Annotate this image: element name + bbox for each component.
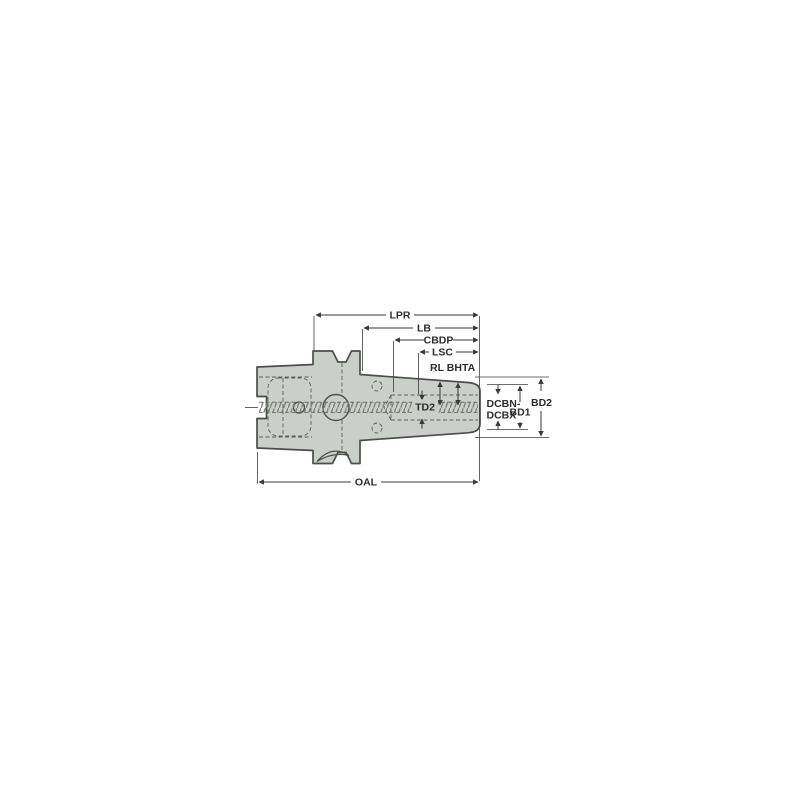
tool-holder-diagram: LPR LB CBDP LSC RL BHTA TD2 DCBN- DCBX B… (0, 0, 800, 800)
page-background: LPR LB CBDP LSC RL BHTA TD2 DCBN- DCBX B… (0, 0, 800, 800)
dim-label-lpr: LPR (390, 310, 411, 322)
dim-label-oal: OAL (355, 477, 378, 489)
center-thread-band (259, 402, 478, 412)
dim-label-bhta: BHTA (447, 362, 476, 374)
dim-label-td2: TD2 (415, 402, 435, 414)
dim-label-cbdp: CBDP (424, 335, 454, 347)
dim-label-lsc: LSC (432, 347, 453, 359)
dim-label-lb: LB (417, 323, 431, 335)
dim-label-bd2: BD2 (531, 397, 552, 409)
dim-label-bd1: BD1 (509, 407, 530, 419)
dim-label-rl: RL (430, 362, 445, 374)
thread-hatch (259, 402, 478, 412)
